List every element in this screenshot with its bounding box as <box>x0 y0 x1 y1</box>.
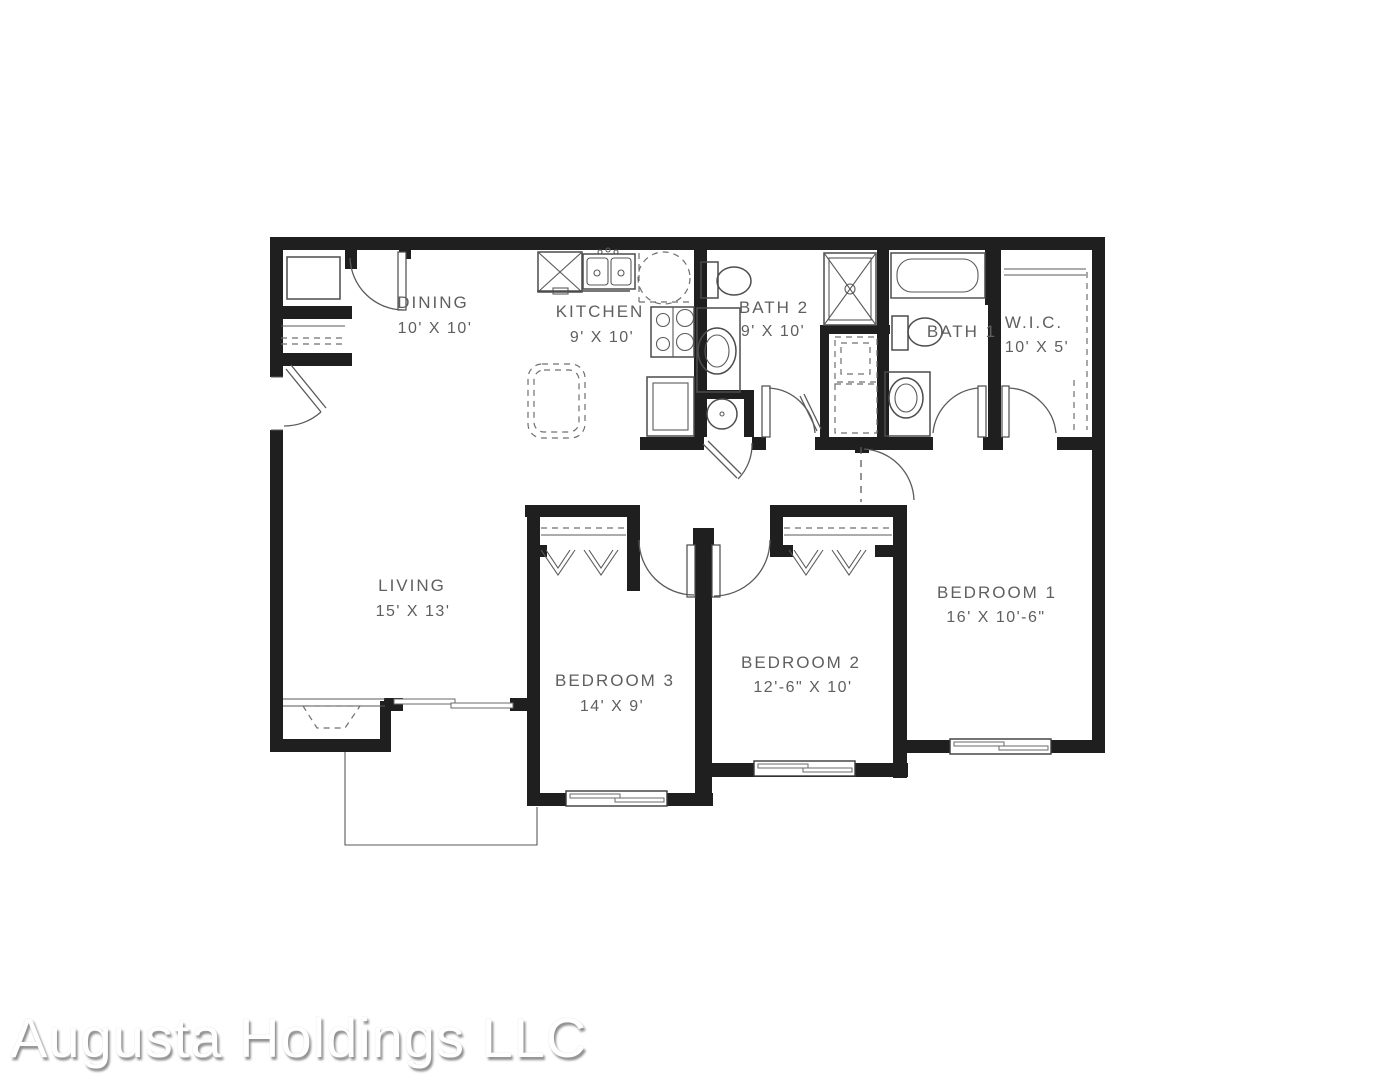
bath1-vanity-sink <box>885 372 930 436</box>
bedroom1-hall-door <box>861 447 914 502</box>
living-dims: 15' X 13' <box>376 603 451 620</box>
oven-cabinet <box>647 377 694 436</box>
label-living: LIVING 15' X 13' <box>376 576 451 620</box>
kitchen-table <box>528 364 585 438</box>
bath2-dims: 9' X 10' <box>741 323 805 340</box>
wic-dims: 10' X 5' <box>1005 339 1069 356</box>
bath2-door <box>762 386 821 437</box>
patio-outline <box>345 752 537 845</box>
label-bedroom1: BEDROOM 1 16' X 10'-6" <box>937 583 1057 626</box>
label-bedroom3: BEDROOM 3 14' X 9' <box>555 671 675 715</box>
bath2-toilet <box>701 262 751 298</box>
bedroom3-window <box>566 791 667 806</box>
wic-name: W.I.C. <box>1005 313 1063 332</box>
bedroom2-window <box>754 761 855 776</box>
windows <box>394 699 1051 806</box>
doors <box>271 252 1056 597</box>
refrigerator <box>538 252 582 294</box>
floor-plan-page: DINING 10' X 10' KITCHEN 9' X 10' BATH 2… <box>0 0 1398 1080</box>
bath2-name: BATH 2 <box>739 298 809 317</box>
storage-closet <box>287 257 340 299</box>
bath1-name: BATH 1 <box>927 322 997 341</box>
pantry-shelves <box>281 326 345 344</box>
label-dining: DINING 10' X 10' <box>397 293 472 337</box>
corner-counter <box>537 252 692 304</box>
label-bath2: BATH 2 9' X 10' <box>739 298 809 340</box>
bedroom1-name: BEDROOM 1 <box>937 583 1057 602</box>
bedroom3-door <box>639 540 695 597</box>
kitchen-dims: 9' X 10' <box>570 329 634 346</box>
kitchen-name: KITCHEN <box>556 302 645 321</box>
stove <box>651 307 694 357</box>
bedroom1-window <box>950 739 1051 754</box>
label-bath1: BATH 1 <box>927 322 997 341</box>
bedroom3-name: BEDROOM 3 <box>555 671 675 690</box>
living-name: LIVING <box>378 576 446 595</box>
patio-sliding-door <box>394 699 513 708</box>
bath2-fixtures <box>697 253 877 433</box>
label-kitchen: KITCHEN 9' X 10' <box>556 302 645 346</box>
shower <box>824 253 876 325</box>
kitchen-sink <box>583 248 635 289</box>
laundry-hookups <box>835 337 877 433</box>
bath1-door <box>933 386 986 437</box>
toilet-room-door <box>703 441 752 479</box>
label-wic: W.I.C. 10' X 5' <box>1005 313 1069 356</box>
floor-plan-drawing: DINING 10' X 10' KITCHEN 9' X 10' BATH 2… <box>0 0 1398 1080</box>
watermark: Augusta Holdings LLC <box>10 1005 587 1070</box>
bedroom1-dims: 16' X 10'-6" <box>946 609 1045 626</box>
living-fixtures <box>283 699 537 845</box>
bedroom2-dims: 12'-6" X 10' <box>753 679 852 696</box>
dining-name: DINING <box>397 293 469 312</box>
bedroom3-dims: 14' X 9' <box>580 698 644 715</box>
bedroom2-door <box>712 540 770 597</box>
bathtub <box>891 253 985 298</box>
bath1-fixtures <box>885 253 985 436</box>
fireplace <box>283 699 385 728</box>
bedroom2-name: BEDROOM 2 <box>741 653 861 672</box>
dining-dims: 10' X 10' <box>398 320 473 337</box>
bedroom3-closet <box>541 528 626 575</box>
room-labels: DINING 10' X 10' KITCHEN 9' X 10' BATH 2… <box>376 293 1070 715</box>
water-heater <box>707 399 737 429</box>
label-bedroom2: BEDROOM 2 12'-6" X 10' <box>741 653 861 696</box>
wic-door <box>1002 386 1056 437</box>
